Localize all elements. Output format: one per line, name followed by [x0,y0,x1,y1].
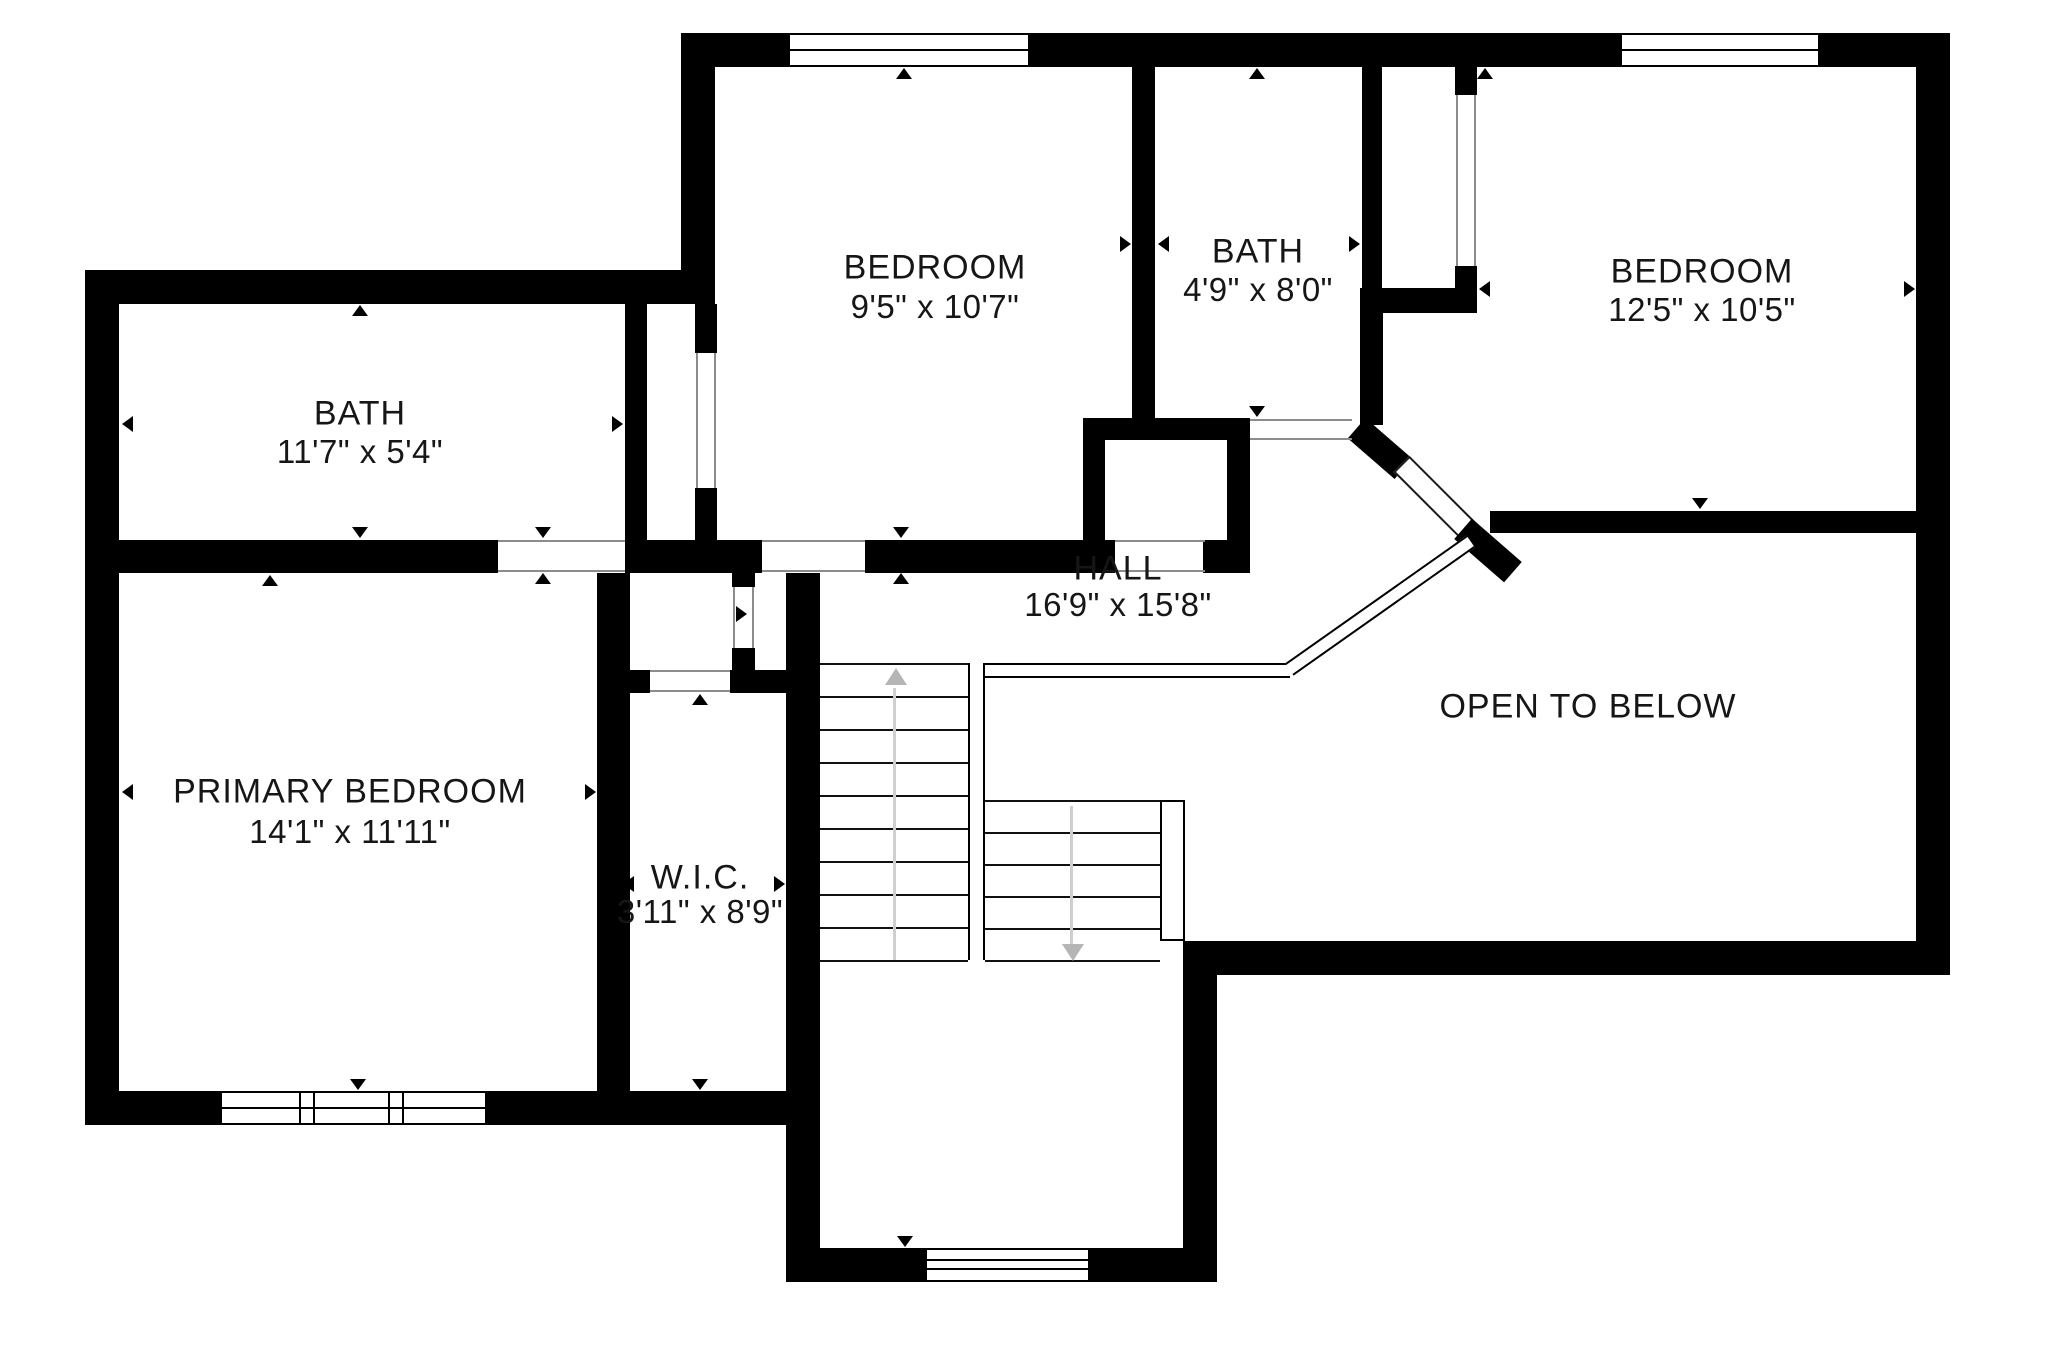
window [925,1248,1090,1282]
wall [597,573,630,1091]
dimension-arrow-right [1349,236,1360,252]
stair-tread-line [820,663,968,665]
dimension-arrow-up [1477,68,1493,79]
stair-tread-line [820,960,968,962]
door-jamb-line [498,570,625,572]
floor-plan-canvas: BATH11'7" x 5'4"BEDROOM9'5" x 10'7"BATH4… [0,0,2048,1366]
window-pane-line [222,1107,485,1109]
wall [786,1248,925,1282]
wall [625,304,647,540]
wall [695,488,717,540]
wall [1132,67,1155,418]
door-jamb-line [1474,95,1476,266]
dimension-arrow-down [897,1236,913,1247]
window-pane-line [790,49,1028,51]
room-label-dims: 14'1" x 11'11" [249,813,450,851]
wall [1183,941,1950,975]
dimension-arrow-right [774,876,785,892]
door-jamb-line [762,570,865,572]
window-mullion [313,1093,315,1123]
room-label-dims: 4'9" x 8'0" [1183,271,1333,309]
door-jamb-line [733,587,735,648]
dimension-arrow-right [612,416,623,432]
railing [1160,800,1185,941]
dimension-arrow-left [623,876,634,892]
dimension-arrow-down [1692,498,1708,509]
dimension-arrow-down [350,1079,366,1090]
dimension-arrow-left [122,416,133,432]
wall [119,540,498,573]
dimension-arrow-down [1249,406,1265,417]
wall [865,540,1083,573]
room-label-name: BEDROOM [844,249,1027,288]
room-label-name: PRIMARY BEDROOM [173,773,527,812]
wall [732,648,755,670]
dimension-arrow-up [1249,68,1265,79]
wall [85,270,119,1125]
door-jamb-line [714,353,716,488]
wall [85,1091,220,1125]
door-jamb-line [498,540,625,542]
door-jamb-line [1250,438,1352,440]
railing [985,663,1290,678]
wall [625,540,762,573]
dimension-arrow-right [585,784,596,800]
wall [786,573,820,1091]
wall [681,33,715,304]
door-jamb-line [1115,540,1205,542]
dimension-arrow-right [1904,281,1915,297]
room-label-name: OPEN TO BELOW [1439,688,1736,727]
door-jamb-line [752,587,754,648]
dimension-arrow-left [1158,236,1169,252]
dimension-arrow-down [535,527,551,538]
room-label-dims: 9'5" x 10'7" [851,288,1020,326]
wall [1203,540,1250,573]
stair-down-guide-line [1070,806,1073,946]
wall [1455,67,1477,95]
wall [1090,1248,1217,1282]
stair-divider [968,663,985,960]
room-label-name: W.I.C. [651,859,750,898]
door-jamb-line [1456,95,1458,266]
wall [630,670,650,693]
stair-tread-line [985,800,1160,802]
wall [1916,33,1950,975]
dimension-arrow-left [122,784,133,800]
room-label-dims: 11'7" x 5'4" [277,433,443,471]
room-label-dims: 12'5" x 10'5" [1608,291,1795,329]
window-mullion [402,1093,404,1123]
dimension-arrow-down [893,527,909,538]
window-mullion [388,1093,390,1123]
wall [85,270,715,304]
door-jamb-line [650,670,730,672]
stair-up-guide-line [893,688,896,960]
wall [730,670,790,693]
door-jamb-line [762,540,865,542]
railing [1285,535,1475,675]
dimension-arrow-down [692,1079,708,1090]
room-label-name: BATH [314,395,406,434]
room-label-name: BATH [1212,233,1304,272]
wall [732,573,755,587]
wall [1362,67,1382,288]
room-label-dims: 3'11" x 8'9" [617,893,783,931]
dimension-arrow-up [893,573,909,584]
dimension-arrow-up [262,575,278,586]
dimension-arrow-right [1120,236,1131,252]
dimension-arrow-up [535,573,551,584]
wall [695,304,717,353]
door-jamb-line [650,690,730,692]
wall [1083,418,1250,440]
window-pane-line [927,1268,1088,1270]
wall [681,33,788,67]
door-jamb-line [1250,419,1352,421]
wall [1183,941,1217,1282]
room-label-name: HALL [1073,550,1162,589]
door-jamb-line [696,353,698,488]
wall [786,1125,820,1248]
window-mullion [299,1093,301,1123]
window-pane-line [1622,49,1818,51]
dimension-arrow-down [352,527,368,538]
stair-down-arrow [1062,944,1084,961]
window-pane-line [927,1259,1088,1261]
room-label-dims: 16'9" x 15'8" [1024,586,1211,624]
room-label-name: BEDROOM [1611,253,1794,292]
stair-up-arrow [885,668,907,685]
dimension-arrow-left [1479,281,1490,297]
dimension-arrow-up [352,305,368,316]
wall [487,1091,820,1125]
wall [1360,288,1383,425]
wall [1455,266,1477,313]
dimension-arrow-up [896,68,912,79]
dimension-arrow-right [736,606,747,622]
wall [1030,33,1620,67]
wall [1490,511,1916,533]
dimension-arrow-up [692,694,708,705]
